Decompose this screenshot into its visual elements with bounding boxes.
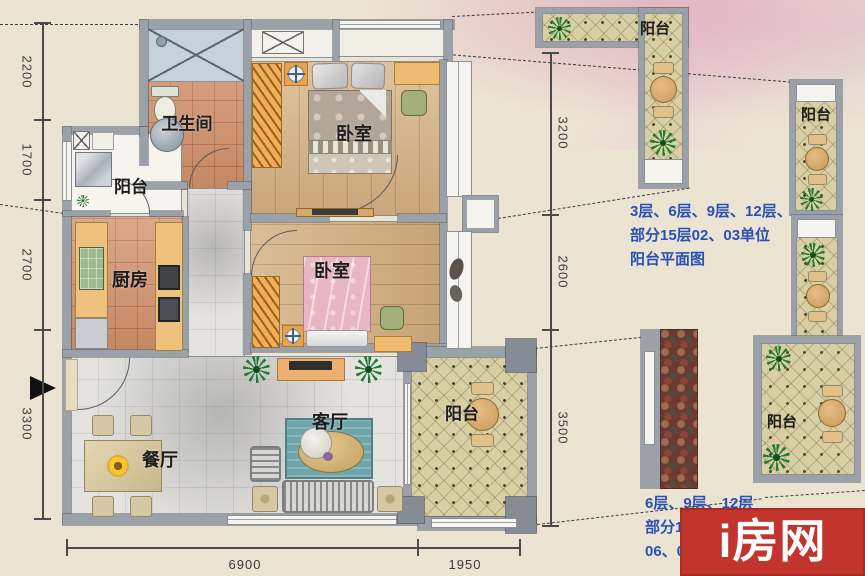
sunflower-icon <box>106 454 130 478</box>
wardrobe-icon <box>252 276 280 348</box>
room-label-bathroom: 卫生间 <box>162 110 213 135</box>
dimension-label: 6900 <box>229 557 262 572</box>
bay-window <box>447 62 471 196</box>
tv-icon <box>312 209 358 215</box>
watermark-text: i房网 <box>680 508 865 576</box>
room-label-dining: 餐厅 <box>142 446 178 472</box>
side-table-icon <box>252 486 278 512</box>
dimension-tick <box>34 22 51 24</box>
chair-icon <box>653 106 674 118</box>
living-balcony-floor <box>411 358 528 516</box>
desk-icon <box>374 336 412 352</box>
desk-icon <box>394 62 440 85</box>
wall <box>150 211 183 216</box>
plant-icon <box>355 356 382 383</box>
wall <box>140 127 148 165</box>
dimension-tick <box>34 119 51 121</box>
decor-icon <box>323 452 333 461</box>
round-table-icon <box>806 284 830 308</box>
floor-plan-canvas: 卫生间 阳台 厨房 卧室 卧室 客厅 餐厅 阳台 2200 1700 2700 … <box>0 0 865 576</box>
dimension-tick <box>34 518 51 520</box>
wall <box>244 20 251 190</box>
room-label-living-balcony: 阳台 <box>445 400 479 425</box>
chair-icon <box>822 385 843 397</box>
pillar <box>506 339 536 372</box>
dimension-label: 2200 <box>20 56 35 89</box>
wall <box>228 182 251 189</box>
chair-icon <box>130 496 152 517</box>
plant-icon <box>766 346 791 371</box>
dimension-tick <box>34 329 51 331</box>
pillar <box>506 497 536 533</box>
wall <box>183 217 188 351</box>
chair-icon <box>471 434 494 447</box>
dimension-line-left <box>42 23 44 520</box>
laundry-cabinet-icon <box>73 131 90 150</box>
stove-icon <box>158 297 180 322</box>
chair-icon <box>808 271 827 282</box>
wall <box>440 60 447 350</box>
dimension-label: 1950 <box>449 557 482 572</box>
projection-line <box>0 204 63 214</box>
dimension-tick <box>542 525 559 527</box>
sink-icon <box>158 265 180 290</box>
note-top-line2: 部分15层02、03单位 <box>630 224 820 248</box>
note-top: 3层、6层、9层、12层、 部分15层02、03单位 阳台平面图 <box>630 200 820 272</box>
round-table-icon <box>805 147 829 171</box>
note-top-line1: 3层、6层、9层、12层、 <box>630 200 820 224</box>
wall <box>63 211 110 216</box>
chair-icon <box>380 306 404 330</box>
entry-threshold <box>66 360 77 410</box>
chair-icon <box>822 431 843 443</box>
bed-throw <box>360 90 386 116</box>
window <box>645 160 682 183</box>
dimension-tick <box>519 539 521 556</box>
chair-icon <box>808 174 827 185</box>
counter <box>92 132 114 150</box>
side-table-icon <box>377 486 403 512</box>
wall <box>398 214 446 222</box>
chair-icon <box>92 496 114 517</box>
dimension-label: 3500 <box>556 412 571 445</box>
dimension-line-right <box>550 53 552 527</box>
detail-balcony-label: 阳台 <box>640 18 670 39</box>
wall <box>244 189 251 230</box>
detail-balcony-label: 阳台 <box>801 104 831 125</box>
round-table-icon <box>818 399 846 427</box>
dimension-tick <box>542 52 559 54</box>
window <box>63 142 71 200</box>
projection-line <box>448 54 796 83</box>
dimension-label: 3200 <box>556 117 571 150</box>
ceiling-fan-icon <box>282 325 304 347</box>
room-label-bedroom1: 卧室 <box>336 120 372 146</box>
note-top-line3: 阳台平面图 <box>630 248 820 272</box>
bay-platform <box>339 29 446 56</box>
chair-icon <box>130 415 152 436</box>
dimension-tick <box>542 329 559 331</box>
window <box>432 519 516 527</box>
cooktop-icon <box>79 247 104 290</box>
wall <box>244 274 251 354</box>
tv-icon <box>289 361 332 370</box>
wall <box>140 20 148 136</box>
round-table-icon <box>650 76 677 103</box>
pillow-icon <box>351 62 386 89</box>
armchair-icon <box>250 446 281 482</box>
detail-balcony-label: 阳台 <box>767 411 797 432</box>
dimension-label: 2700 <box>20 249 35 282</box>
chair-icon <box>808 311 827 322</box>
dimension-tick <box>417 539 419 556</box>
dimension-tick <box>66 539 68 556</box>
kitchen-counter <box>75 318 108 349</box>
ac-platform <box>463 196 498 232</box>
sofa-icon <box>282 480 374 513</box>
pillow-icon <box>306 330 368 347</box>
window <box>228 516 396 524</box>
pillow-icon <box>312 62 349 89</box>
chair-icon <box>401 90 427 116</box>
dimension-tick <box>542 214 559 216</box>
wall <box>333 20 339 60</box>
dimension-tick <box>34 199 51 201</box>
wardrobe-icon <box>252 63 282 168</box>
room-label-kitchen: 厨房 <box>112 266 148 292</box>
dimension-label: 1700 <box>20 144 35 177</box>
chair-icon <box>92 415 114 436</box>
plant-icon <box>548 17 571 40</box>
chair-icon <box>471 382 494 395</box>
plant-icon <box>650 130 676 156</box>
window <box>340 21 440 28</box>
plant-icon <box>243 356 270 383</box>
wall <box>63 350 188 357</box>
chair-icon <box>653 62 674 74</box>
sliding-door-window <box>405 384 410 484</box>
feature-tile-wall <box>661 330 697 488</box>
hallway-floor <box>188 189 244 357</box>
plant-icon <box>763 444 790 471</box>
plant-icon <box>77 195 89 207</box>
window <box>797 85 835 101</box>
projection-line <box>452 11 539 17</box>
room-label-bedroom2: 卧室 <box>314 257 350 283</box>
dimension-label: 3300 <box>20 408 35 441</box>
ceiling-fan-icon <box>284 62 308 86</box>
room-label-service-balcony: 阳台 <box>114 173 148 198</box>
cabinet-icon <box>262 31 304 54</box>
window <box>645 352 654 444</box>
laundry-sink-icon <box>75 152 112 187</box>
watermark-badge: i房网 <box>680 508 865 576</box>
shower-head-icon <box>156 36 167 47</box>
chair-icon <box>808 134 827 145</box>
room-label-living: 客厅 <box>312 408 348 434</box>
dimension-label: 2600 <box>556 256 571 289</box>
dimension-line-bottom <box>67 547 520 549</box>
